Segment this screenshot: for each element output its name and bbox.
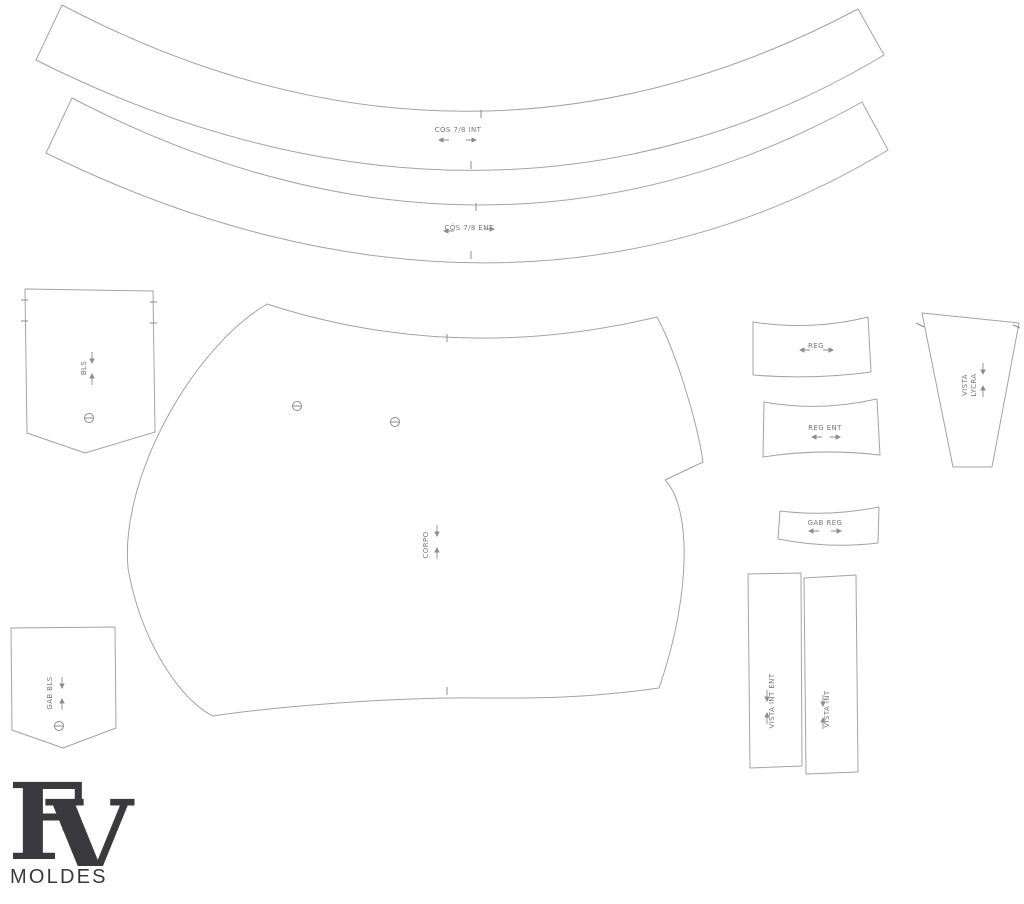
brand-logo: F V MOLDES [6,784,156,904]
grain-arrow-icon [435,548,439,559]
grain-arrow-icon [439,138,449,142]
logo-wordmark: MOLDES [8,866,110,888]
grain-arrow-icon [809,529,819,533]
piece-vista-int-ent [748,573,802,768]
piece-bls [25,289,155,453]
notch-mark [916,323,924,327]
button-mark [391,418,400,427]
piece-vista-int-ent-label: VISTA INT ENT [768,673,776,728]
piece-reg-label: REG [808,342,824,350]
grain-arrow-icon [466,138,476,142]
piece-cos-int-label: CÓS 7/8 INT [435,125,482,134]
button-mark [293,402,302,411]
grain-arrow-icon [830,435,840,439]
grain-arrow-icon [831,529,841,533]
button-mark [85,414,94,423]
piece-vista-lycra-label-line2: LYCRA [970,373,978,396]
piece-corpo-label: CORPO [422,531,430,558]
grain-arrow-icon [981,386,985,397]
grain-arrow-icon [812,435,822,439]
piece-vista-int [804,575,858,774]
grain-arrow-icon [981,363,985,374]
piece-corpo [127,304,703,716]
piece-gab-reg-label: GAB REG [808,519,843,527]
grain-arrow-icon [435,525,439,536]
piece-bls-label: BLS [80,361,88,376]
piece-cos-int [36,5,884,170]
button-mark [55,722,64,731]
grain-arrow-icon [90,374,94,385]
grain-arrow-icon [60,699,64,710]
grain-arrow-icon [90,352,94,363]
grain-arrow-icon [60,677,64,688]
piece-gab-bls-label: GAB BLS [46,676,54,709]
grain-arrow-icon [823,348,833,352]
piece-cos-ent [46,98,888,263]
piece-reg-ent-label: REG ENT [808,424,842,432]
piece-vista-lycra-label-line1: VISTA [961,374,969,396]
piece-gab-bls [11,627,116,748]
pattern-sheet: CÓS 7/8 INT CÓS 7/8 ENT BLS CORPO GAB BL… [0,0,1024,904]
